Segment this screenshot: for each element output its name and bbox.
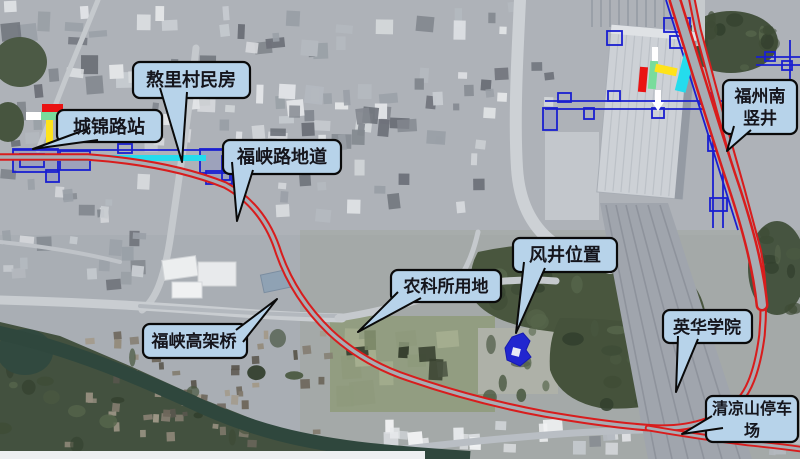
map-texture-block — [399, 174, 410, 185]
map-texture-block — [335, 24, 353, 34]
tree-patch — [726, 13, 743, 26]
map-texture-block — [302, 345, 311, 354]
map-texture-block — [252, 383, 259, 388]
map-texture-block — [276, 204, 290, 217]
map-texture-block — [313, 429, 321, 434]
map-texture-block — [311, 88, 320, 102]
map-texture-block — [159, 362, 164, 369]
tree-patch — [740, 64, 749, 70]
map-texture-block — [544, 72, 554, 81]
tree-patch — [760, 236, 774, 244]
map-texture-block — [242, 400, 249, 409]
map-texture-block — [453, 103, 459, 110]
map-texture-block — [175, 415, 184, 422]
map-texture-block — [4, 1, 17, 13]
tree-patch — [603, 376, 621, 389]
map-texture-block — [300, 40, 318, 57]
map-texture-block — [88, 398, 97, 403]
map-texture-block — [286, 11, 300, 27]
map-texture-block — [143, 414, 153, 420]
map-texture-block — [238, 391, 243, 396]
map-texture-block — [458, 72, 467, 79]
map-texture-block — [133, 232, 147, 239]
map-texture-block — [318, 377, 324, 385]
map-texture-block — [279, 84, 296, 99]
map-texture-block — [495, 421, 506, 430]
tree-patch — [499, 375, 507, 392]
tree-patch — [247, 365, 265, 380]
map-texture-block — [473, 179, 485, 191]
callout-label-line2: 竖井 — [743, 108, 777, 128]
callout-label: 城锦路站 — [73, 116, 145, 137]
tree-patch — [785, 304, 798, 315]
map-texture-block — [245, 42, 258, 54]
map-texture-block — [471, 153, 477, 165]
tree-patch — [22, 380, 36, 395]
image-margin — [0, 451, 425, 459]
map-texture-block — [182, 412, 187, 417]
tree-patch — [37, 377, 54, 386]
callout-label: 农科所用地 — [403, 276, 489, 296]
map-texture-block — [155, 6, 164, 21]
tree-patch — [601, 345, 622, 355]
tree-patch — [763, 25, 774, 35]
map-texture-block — [426, 130, 446, 145]
callout-label: 英华学院 — [673, 317, 741, 337]
map-texture-block — [399, 431, 409, 440]
route-annotation-map: 城锦路站 熬里村民房 福峡路地道 福峡高架桥 农科所用地 风井位置 — [0, 0, 800, 459]
map-texture-block — [85, 75, 103, 94]
map-texture-block — [170, 409, 177, 418]
map-texture-block — [589, 436, 601, 447]
map-texture-block — [323, 93, 332, 104]
map-texture-block — [315, 209, 331, 223]
tree-patch — [562, 332, 584, 345]
map-texture-block — [355, 108, 370, 125]
map-texture-block — [387, 193, 401, 210]
map-texture-block — [114, 339, 122, 348]
map-texture-block — [65, 22, 84, 32]
map-texture-block — [289, 105, 300, 117]
map-texture-block — [464, 85, 474, 96]
map-texture-block — [225, 390, 231, 397]
map-texture-block — [222, 6, 229, 21]
map-texture-block — [80, 6, 89, 19]
map-texture-block — [109, 64, 124, 79]
map-texture-block — [437, 361, 449, 377]
map-texture-block — [364, 330, 376, 350]
map-texture-block — [137, 14, 151, 30]
map-texture-block — [252, 356, 260, 364]
map-texture-block — [27, 179, 35, 190]
map-texture-block — [231, 369, 239, 376]
map-texture-block — [252, 125, 266, 140]
map-texture-block — [395, 330, 417, 348]
map-texture-block — [140, 430, 146, 437]
map-texture-block — [416, 16, 435, 33]
map-texture-block — [317, 182, 326, 191]
tree-patch — [761, 34, 774, 50]
map-texture-block — [225, 105, 235, 113]
map-texture-block — [85, 338, 95, 345]
map-texture-block — [293, 350, 298, 360]
map-texture-block — [499, 26, 506, 34]
map-texture-block — [503, 444, 516, 453]
map-texture-block — [131, 265, 144, 277]
map-texture-block — [113, 331, 121, 339]
tree-patch — [285, 371, 303, 379]
map-texture-block — [475, 139, 486, 149]
map-texture-block — [48, 68, 59, 82]
tree-patch — [600, 398, 614, 411]
tree-patch — [111, 397, 124, 403]
tree-patch — [43, 390, 60, 404]
map-texture-block — [109, 239, 123, 256]
map-texture-block — [231, 395, 239, 405]
map-texture-block — [436, 330, 459, 348]
tree-patch — [270, 329, 286, 348]
map-texture-block — [220, 427, 226, 436]
map-texture-block — [336, 386, 353, 407]
tree-patch — [765, 262, 779, 274]
tree-patch — [787, 264, 795, 278]
map-texture-block — [358, 84, 372, 99]
tree-patch — [516, 389, 526, 402]
tree-patch — [707, 11, 715, 28]
map-texture-block — [453, 428, 464, 442]
tree-patch — [99, 414, 117, 428]
map-texture-block — [433, 92, 444, 106]
map-texture-block — [377, 119, 389, 137]
tree-patch — [68, 405, 86, 417]
map-texture-block — [87, 268, 97, 280]
map-texture-block — [300, 379, 310, 389]
map-texture-block — [573, 441, 586, 455]
map-texture-block — [122, 247, 134, 261]
map-texture-block — [100, 206, 109, 219]
map-texture-block — [453, 20, 465, 39]
map-texture-block — [105, 199, 112, 206]
tree-patch — [775, 245, 781, 264]
map-texture-block — [166, 432, 175, 442]
map-texture-block — [605, 443, 618, 455]
tree-patch — [229, 429, 236, 445]
map-texture-block — [69, 236, 77, 244]
map-texture-block — [278, 182, 287, 189]
map-texture-block — [304, 110, 314, 121]
map-texture-block — [130, 337, 140, 345]
map-texture-block — [163, 410, 170, 417]
map-texture-block — [374, 186, 385, 194]
map-texture-block — [270, 128, 286, 136]
map-texture-block — [11, 268, 25, 279]
map-texture-block — [456, 201, 466, 213]
map-texture-block — [62, 189, 73, 203]
tree-patch — [571, 276, 583, 294]
map-texture-block — [212, 424, 218, 429]
map-texture-block — [376, 19, 394, 34]
callout-label: 福峡高架桥 — [151, 331, 238, 351]
tree-patch — [530, 314, 549, 330]
map-texture-block — [497, 93, 507, 102]
map-texture-block — [237, 24, 245, 39]
map-texture-block — [79, 205, 95, 216]
map-texture-block — [112, 403, 120, 412]
tree-patch — [746, 30, 757, 37]
map-texture-block — [390, 428, 400, 439]
map-texture-block — [299, 174, 311, 186]
map-texture-block — [485, 89, 494, 98]
map-texture-block — [272, 33, 279, 42]
map-texture-block — [25, 132, 40, 144]
map-texture-block — [313, 120, 330, 131]
tree-patch — [591, 320, 599, 337]
map-texture-block — [324, 353, 333, 360]
tree-patch — [9, 382, 18, 389]
callout-label: 熬里村民房 — [146, 69, 236, 90]
satellite-map-canvas: 城锦路站 熬里村民房 福峡路地道 福峡高架桥 农科所用地 风井位置 — [0, 0, 800, 459]
tree-patch — [70, 437, 83, 453]
map-texture-block — [301, 122, 314, 136]
map-texture-block — [257, 343, 264, 349]
map-texture-block — [20, 257, 28, 269]
map-texture-block — [531, 62, 542, 71]
map-texture-block — [121, 272, 132, 285]
map-texture-block — [483, 107, 496, 118]
map-texture-block — [256, 85, 264, 104]
map-texture-block — [494, 68, 508, 81]
callout-label-line2: 场 — [744, 422, 760, 440]
map-texture-block — [354, 160, 364, 176]
map-texture-block — [415, 78, 424, 89]
map-texture-block — [37, 11, 50, 31]
map-texture-block — [488, 13, 495, 24]
map-texture-block — [336, 36, 345, 50]
map-texture-block — [34, 84, 44, 98]
tree-patch — [129, 348, 136, 366]
tree-patch — [542, 380, 549, 391]
map-texture-block — [162, 20, 178, 31]
map-texture-block — [99, 260, 110, 272]
map-texture-block — [352, 130, 365, 145]
map-texture-block — [197, 99, 215, 113]
map-texture-block — [153, 414, 159, 423]
map-texture-block — [219, 24, 230, 37]
tree-patch — [486, 335, 496, 354]
map-texture-block — [343, 90, 351, 106]
map-texture-block — [418, 346, 436, 362]
callout-label: 风井位置 — [529, 244, 601, 265]
callout-label-line1: 福州南 — [734, 86, 786, 106]
map-texture-block — [247, 440, 257, 448]
map-texture-block — [106, 279, 122, 291]
map-texture-block — [172, 371, 180, 376]
map-texture-block — [397, 119, 417, 132]
map-texture-block — [220, 119, 230, 130]
callout-label-line1: 清凉山停车 — [712, 399, 792, 418]
map-texture-block — [347, 199, 361, 213]
callout-label: 福峡路地道 — [236, 146, 327, 167]
map-texture-block — [280, 191, 288, 203]
map-texture-block — [137, 174, 150, 190]
map-texture-block — [379, 93, 398, 105]
map-texture-block — [264, 331, 269, 340]
